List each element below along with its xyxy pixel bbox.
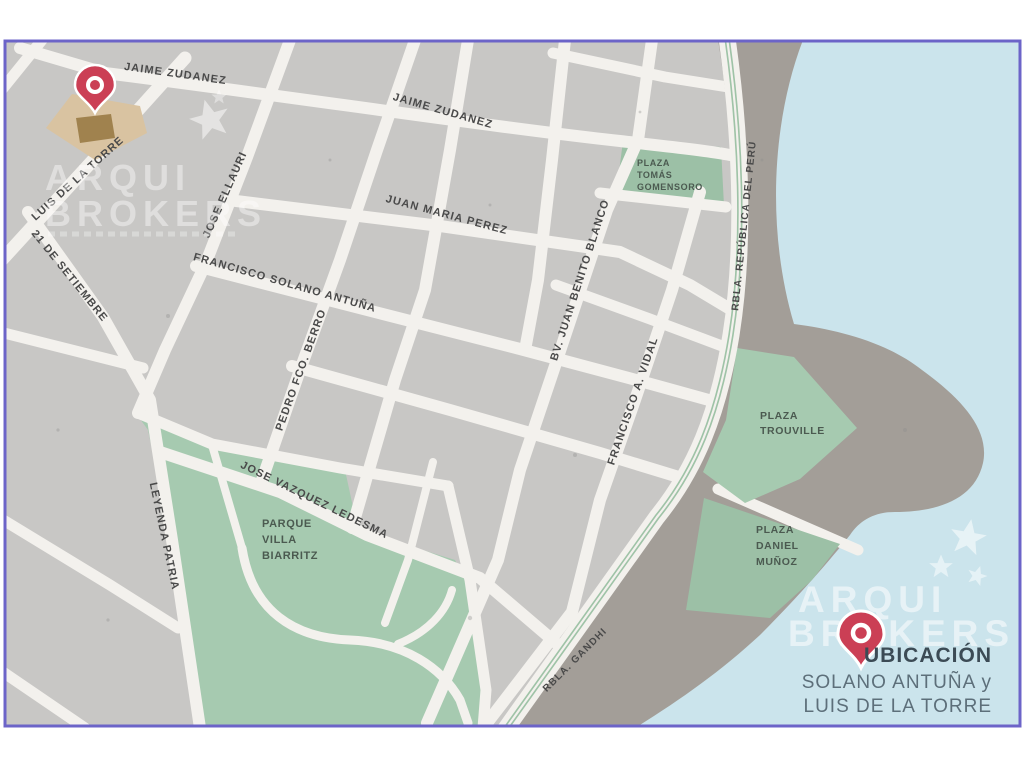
label-plaza-gomensoro-2: TOMÁS bbox=[637, 170, 672, 180]
legend-subtitle-line1: SOLANO ANTUÑA y bbox=[802, 671, 992, 693]
label-plaza-daniel-munoz-1: PLAZA bbox=[756, 524, 794, 536]
property-building-footprint bbox=[76, 114, 115, 143]
label-plaza-gomensoro-1: PLAZA bbox=[637, 158, 670, 168]
label-plaza-trouville-2: TROUVILLE bbox=[760, 425, 825, 437]
brand-watermark-line2: BROKERS bbox=[45, 193, 267, 234]
label-parque-villa-biarritz-2: VILLA bbox=[262, 534, 297, 546]
location-map: JAIME ZUDANEZ JAIME ZUDANEZ JUAN MARIA P… bbox=[0, 0, 1024, 768]
label-plaza-trouville-1: PLAZA bbox=[760, 410, 798, 422]
legend-subtitle-line2: LUIS DE LA TORRE bbox=[804, 696, 992, 717]
label-plaza-daniel-munoz-3: MUÑOZ bbox=[756, 555, 798, 568]
label-plaza-gomensoro-3: GOMENSORO bbox=[637, 182, 703, 192]
label-parque-villa-biarritz-1: PARQUE bbox=[262, 518, 312, 530]
brand-watermark-line1: ARQUI bbox=[45, 157, 191, 198]
legend-title: UBICACIÓN bbox=[864, 643, 992, 667]
label-parque-villa-biarritz-3: BIARRITZ bbox=[262, 550, 318, 562]
label-plaza-daniel-munoz-2: DANIEL bbox=[756, 540, 799, 552]
